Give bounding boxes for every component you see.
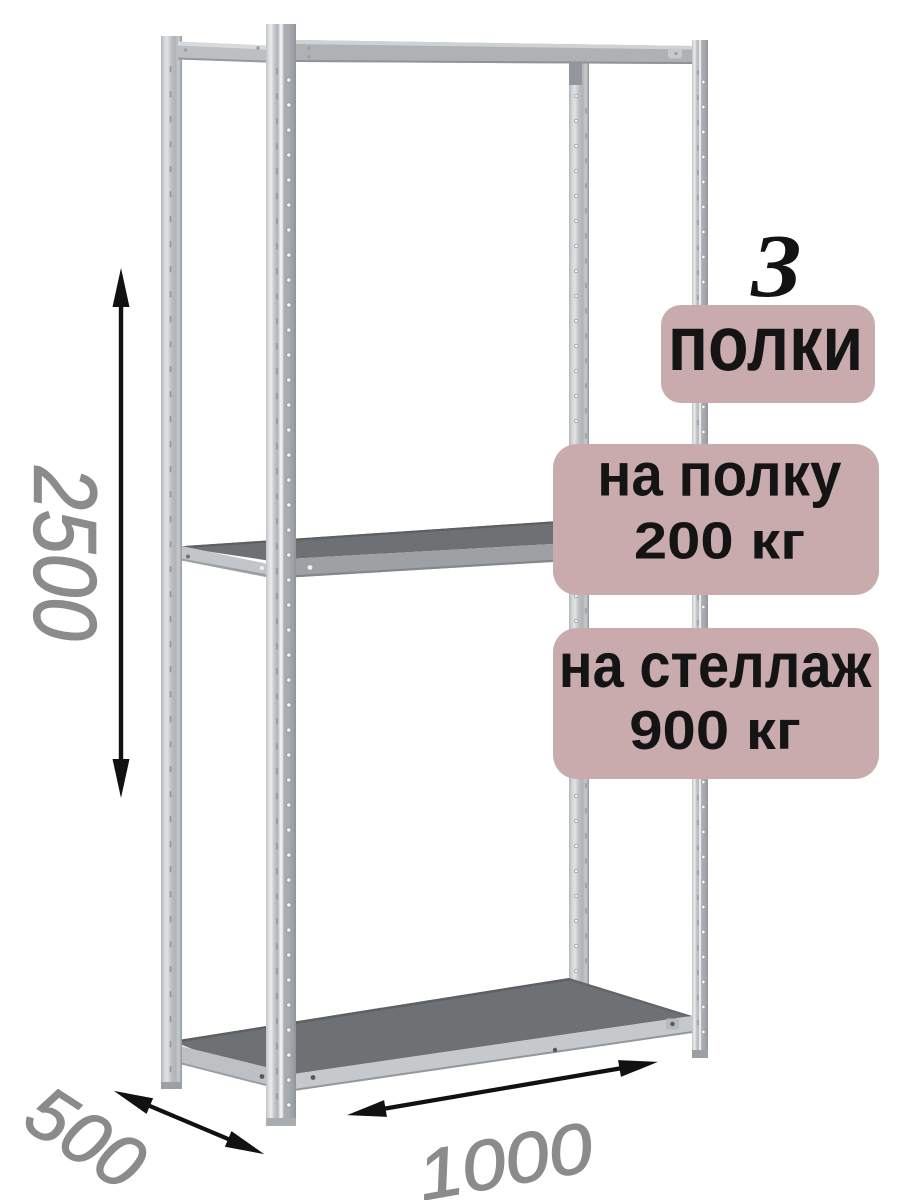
svg-text:на полку: на полку <box>597 442 841 509</box>
svg-text:900 кг: 900 кг <box>629 700 801 761</box>
svg-text:2500: 2500 <box>15 465 115 640</box>
svg-text:полки: полки <box>668 300 863 387</box>
svg-text:на стеллаж: на стеллаж <box>559 630 872 701</box>
svg-text:200 кг: 200 кг <box>634 511 805 569</box>
